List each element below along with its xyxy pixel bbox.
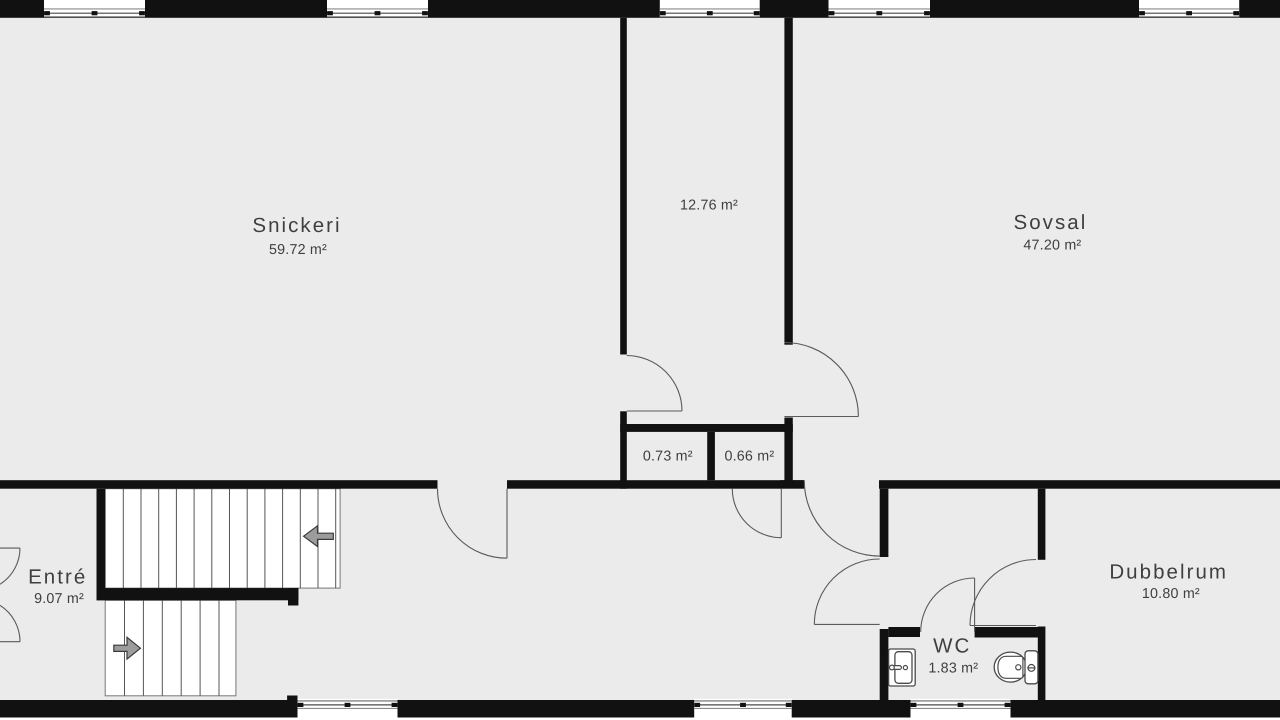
svg-text:9.07 m²: 9.07 m²	[34, 591, 84, 607]
svg-text:1.83 m²: 1.83 m²	[928, 660, 978, 676]
svg-text:47.20 m²: 47.20 m²	[1023, 238, 1081, 254]
svg-text:10.80 m²: 10.80 m²	[1142, 586, 1200, 602]
svg-text:Entré: Entré	[28, 565, 87, 588]
svg-text:Sovsal: Sovsal	[1013, 211, 1087, 234]
svg-text:0.73 m²: 0.73 m²	[643, 448, 693, 464]
svg-text:Snickeri: Snickeri	[252, 214, 341, 237]
svg-text:0.66 m²: 0.66 m²	[724, 448, 774, 464]
svg-text:59.72 m²: 59.72 m²	[269, 242, 327, 258]
svg-text:12.76 m²: 12.76 m²	[680, 198, 738, 214]
svg-text:WC: WC	[933, 635, 971, 658]
svg-text:Dubbelrum: Dubbelrum	[1109, 561, 1228, 584]
